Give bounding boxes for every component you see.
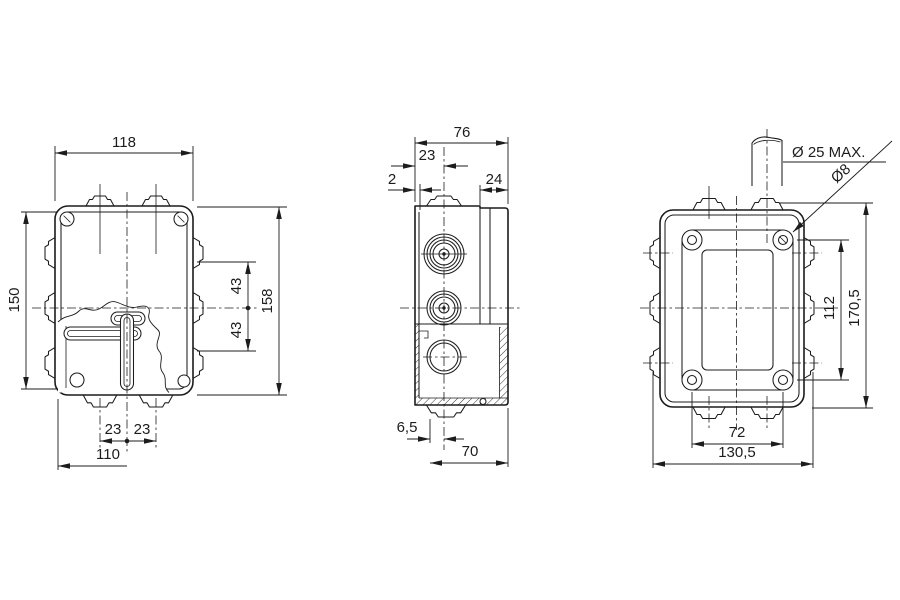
side-view: 76 23 2 24 6,5: [388, 124, 520, 467]
dim-label: 150: [6, 287, 23, 312]
label-cable-entry: Ø 25 MAX.: [783, 144, 886, 162]
dim-front-height: 158: [197, 207, 287, 395]
dim-origin-dot: [125, 439, 130, 444]
section-floor: [415, 398, 508, 405]
dim-label: 170,5: [846, 289, 863, 327]
knockout-bump: [45, 348, 55, 379]
dim-label: 2: [388, 171, 396, 188]
dim-label: Ø8: [828, 161, 854, 187]
drain-detail: [480, 399, 486, 405]
section-wall-right: [500, 327, 509, 398]
dim-label: 72: [729, 424, 746, 441]
screw-hole: [70, 373, 84, 387]
junction-box-technical-drawing: 118 158 150 43 43 2: [0, 0, 900, 600]
dim-side-wall-thickness: 2: [388, 171, 441, 210]
front-view: 118 158 150 43 43 2: [6, 134, 287, 470]
section-wall-left: [415, 324, 420, 398]
dim-label: 112: [821, 296, 838, 320]
back-view: Ø 25 MAX. Ø8 112 170,5 72: [640, 129, 892, 468]
dim-label: 23: [419, 147, 436, 164]
knockout-bump: [193, 348, 203, 379]
fixing-boss: [682, 370, 702, 390]
dim-label: 118: [112, 134, 136, 151]
dim-side-foot-offset: 6,5: [397, 419, 464, 443]
lid-screw-icon: [60, 212, 74, 226]
drawing-page: 118 158 150 43 43 2: [0, 0, 900, 600]
dim-label: 24: [486, 171, 503, 188]
dim-side-depth: 76: [415, 124, 508, 204]
fixing-boss: [773, 370, 793, 390]
knockout-bump: [45, 238, 55, 269]
dim-label: 130,5: [718, 444, 756, 461]
dim-origin-dot: [246, 306, 251, 311]
screw-hole: [178, 375, 190, 387]
dim-label: 43: [228, 278, 245, 295]
dim-label: 23: [105, 421, 122, 438]
knockout-bump: [193, 238, 203, 269]
dim-label: 76: [454, 124, 471, 141]
dim-front-knockout-spacing: 23 23: [100, 421, 156, 443]
lid-screw-icon: [174, 212, 188, 226]
dim-label: 6,5: [397, 419, 418, 436]
dim-front-width: 118: [55, 134, 193, 201]
dim-front-hole-offsets: 43 43: [197, 262, 256, 351]
dim-label: 110: [96, 446, 120, 463]
dim-label: Ø 25 MAX.: [792, 144, 865, 161]
knockout-bump: [426, 405, 465, 417]
dim-side-lid-depth: 24: [480, 171, 508, 205]
dim-side-knockout-offset: 23: [391, 147, 468, 166]
dim-front-inner-height: 150: [6, 212, 58, 389]
dim-label: 158: [259, 288, 276, 313]
dim-label: 70: [462, 443, 479, 460]
dim-label: 23: [134, 421, 151, 438]
fixing-boss: [682, 230, 702, 250]
side-outline: [415, 206, 508, 405]
dim-label: 43: [228, 322, 245, 339]
cable-cylinder: [752, 137, 782, 186]
